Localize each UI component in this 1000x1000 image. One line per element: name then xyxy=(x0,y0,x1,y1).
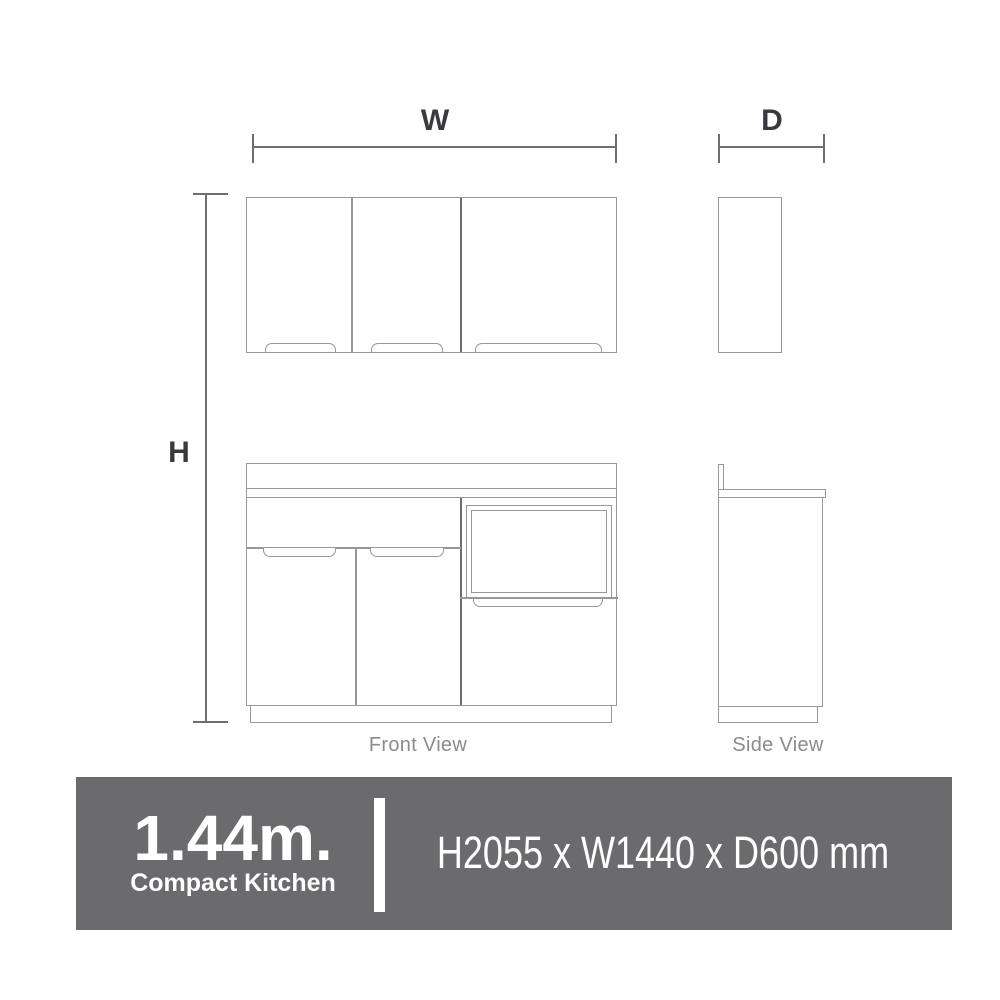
front-upper-door3-handle xyxy=(475,343,602,352)
front-upper-door2-handle xyxy=(371,343,443,352)
height-dimension-line xyxy=(205,194,207,723)
appliance-outer-frame xyxy=(466,505,612,598)
front-plinth xyxy=(250,705,612,723)
product-banner: 1.44m. Compact Kitchen H2055 x W1440 x D… xyxy=(76,777,952,930)
side-view-caption: Side View xyxy=(678,735,878,755)
width-dimension-label: W xyxy=(253,106,617,136)
width-dimension-tick-right xyxy=(615,134,617,163)
height-dimension-label: H xyxy=(162,438,196,468)
height-dimension-tick-bottom xyxy=(193,721,228,723)
front-upper-door-divider-2 xyxy=(460,198,462,352)
front-upper-cabinet xyxy=(246,197,617,353)
appliance-drawer-handle xyxy=(473,599,603,607)
width-dimension-tick-left xyxy=(252,134,254,163)
side-backsplash xyxy=(718,464,724,490)
side-upper-cabinet xyxy=(718,197,782,353)
depth-dimension-label: D xyxy=(719,106,825,136)
front-backsplash xyxy=(246,463,617,489)
front-upper-door-divider-1 xyxy=(351,198,353,352)
width-dimension-line xyxy=(253,146,617,148)
banner-dimensions-text: H2055 x W1440 x D600 mm xyxy=(423,830,903,875)
depth-dimension-tick-right xyxy=(823,134,825,163)
side-base-cabinet xyxy=(718,497,823,707)
banner-divider-bar xyxy=(374,798,385,912)
front-upper-door1-handle xyxy=(265,343,336,352)
front-base-cabinet xyxy=(246,497,617,706)
side-plinth xyxy=(718,706,818,723)
banner-product-text: Compact Kitchen xyxy=(83,871,383,896)
front-drawer1-handle xyxy=(263,548,336,557)
height-dimension-tick-top xyxy=(193,193,228,195)
front-base-door-divider xyxy=(355,548,357,705)
front-drawer2-handle xyxy=(370,548,444,557)
depth-dimension-line xyxy=(719,146,825,148)
appliance-door xyxy=(471,510,607,593)
front-base-column-divider xyxy=(460,498,462,705)
front-view-caption: Front View xyxy=(318,735,518,755)
kitchen-dimension-diagram: W D H xyxy=(0,0,1000,1000)
depth-dimension-tick-left xyxy=(718,134,720,163)
banner-size-text: 1.44m. xyxy=(83,806,383,870)
